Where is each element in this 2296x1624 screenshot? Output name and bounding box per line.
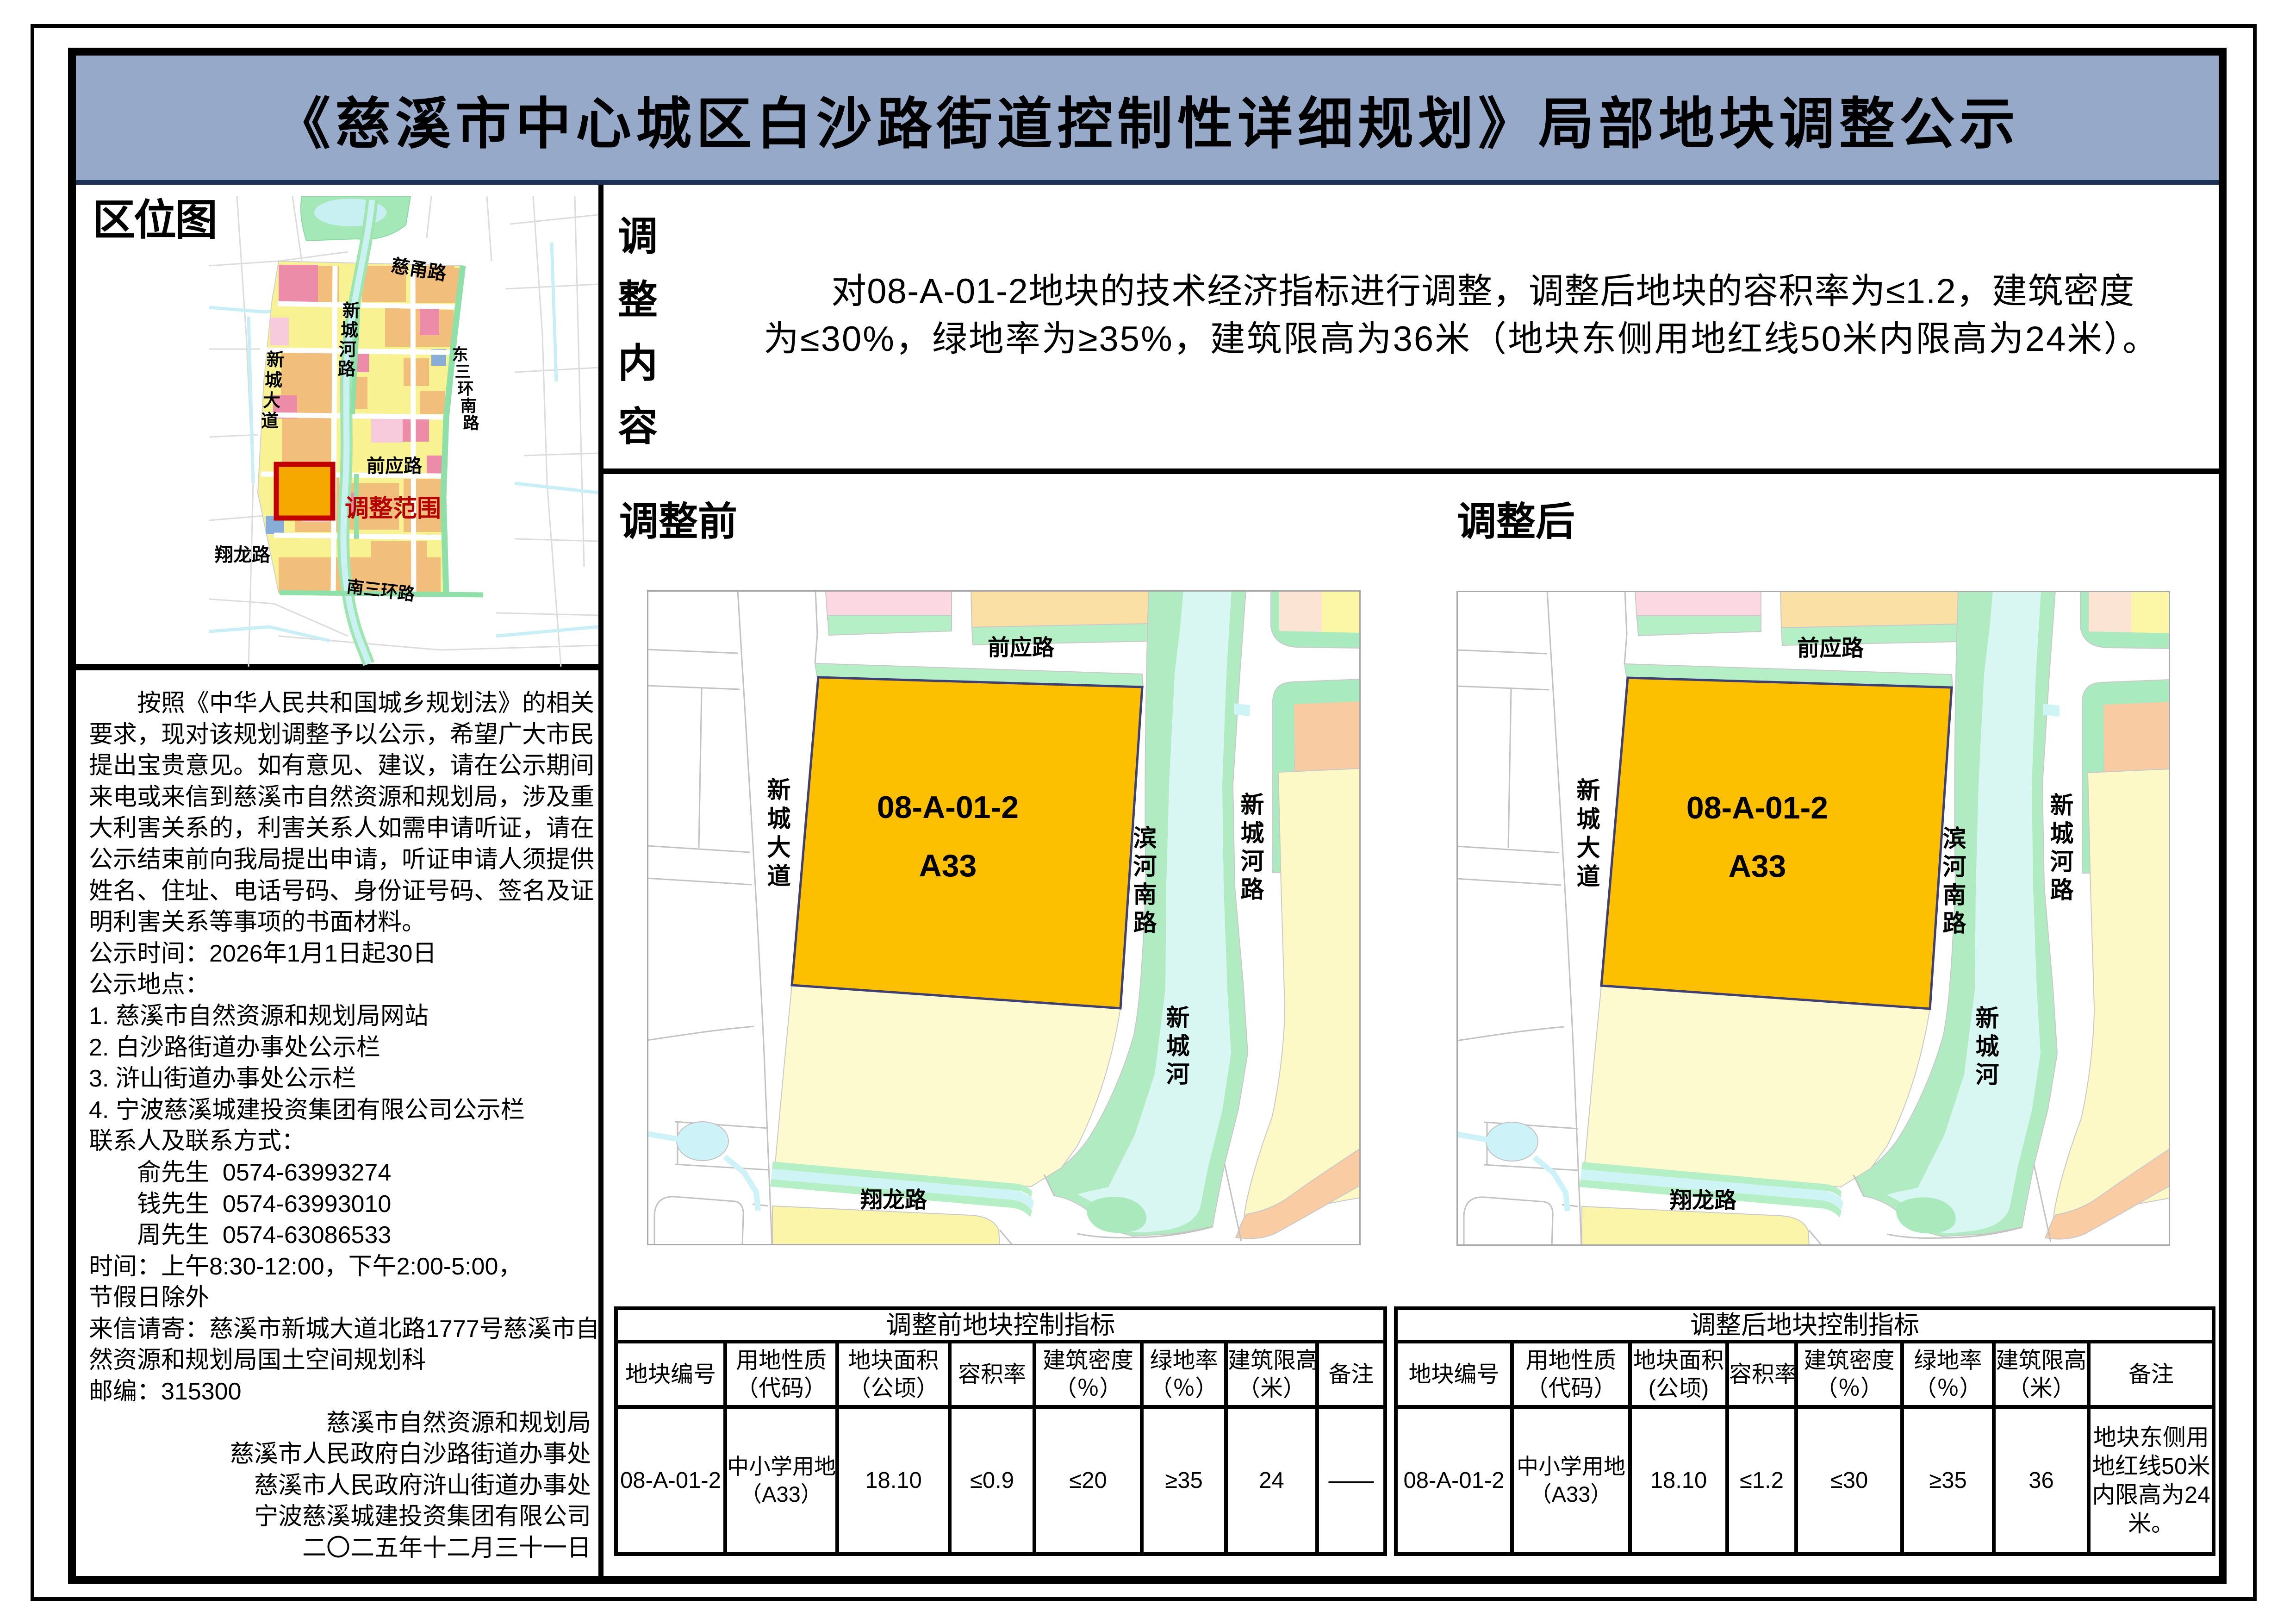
svg-text:河: 河: [339, 340, 356, 360]
svg-text:东: 东: [452, 346, 468, 364]
svg-text:道: 道: [261, 412, 279, 431]
svg-text:前应路: 前应路: [367, 456, 423, 476]
svg-text:调整范围: 调整范围: [345, 495, 441, 522]
svg-text:翔龙路: 翔龙路: [215, 545, 271, 565]
svg-text:城: 城: [341, 321, 358, 340]
svg-text:新: 新: [267, 350, 284, 370]
svg-text:新: 新: [342, 301, 360, 321]
svg-text:路: 路: [338, 360, 356, 379]
svg-text:环: 环: [457, 380, 473, 398]
svg-text:三: 三: [454, 363, 471, 381]
svg-text:大: 大: [263, 391, 280, 411]
svg-text:南: 南: [460, 397, 476, 415]
svg-text:路: 路: [463, 414, 479, 432]
svg-text:城: 城: [265, 371, 282, 390]
